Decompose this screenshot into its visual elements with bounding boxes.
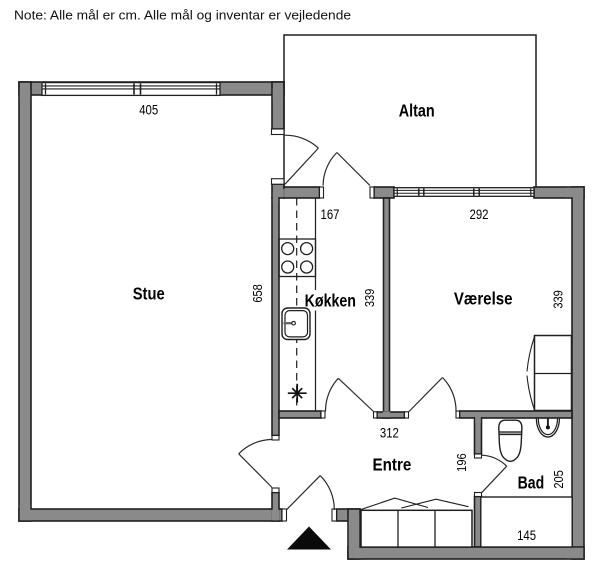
svg-text:Entre: Entre bbox=[373, 455, 412, 475]
svg-text:Værelse: Værelse bbox=[454, 288, 513, 308]
svg-text:145: 145 bbox=[517, 528, 536, 543]
svg-text:Note: Alle mål er cm. Alle mål: Note: Alle mål er cm. Alle mål og invent… bbox=[14, 8, 351, 23]
svg-text:405: 405 bbox=[139, 102, 158, 117]
svg-text:205: 205 bbox=[552, 470, 566, 489]
svg-text:292: 292 bbox=[470, 207, 489, 222]
svg-text:167: 167 bbox=[321, 207, 340, 222]
svg-text:196: 196 bbox=[455, 453, 469, 472]
svg-text:Altan: Altan bbox=[399, 100, 435, 120]
svg-text:Køkken: Køkken bbox=[305, 290, 356, 310]
svg-text:339: 339 bbox=[552, 290, 566, 309]
svg-text:658: 658 bbox=[251, 284, 265, 303]
svg-text:312: 312 bbox=[380, 426, 399, 441]
svg-text:339: 339 bbox=[363, 289, 377, 308]
svg-text:Stue: Stue bbox=[133, 283, 165, 303]
svg-text:Bad: Bad bbox=[518, 473, 545, 493]
